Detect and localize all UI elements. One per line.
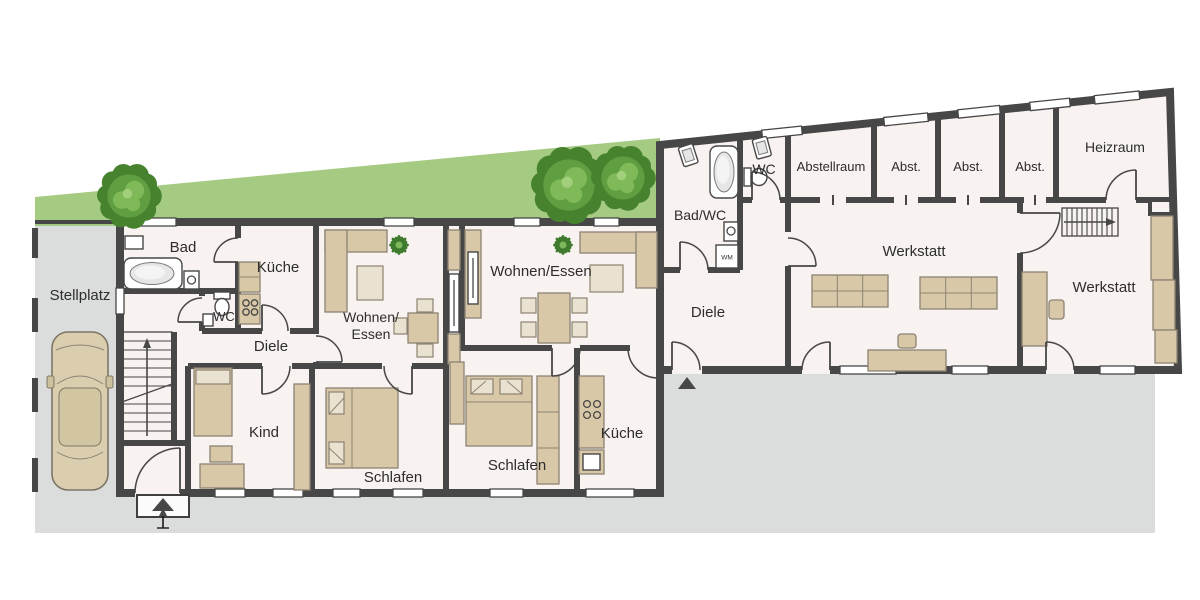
double-bed-icon — [326, 388, 398, 468]
desk-icon — [868, 350, 946, 371]
room-label-wc-2: WC — [752, 161, 775, 177]
window — [594, 218, 619, 226]
desk-icon — [1022, 272, 1047, 346]
wardrobe-icon — [294, 384, 310, 490]
double-bed-icon — [466, 376, 532, 446]
room-label-werkstatt-1: Werkstatt — [882, 243, 946, 260]
shelf-icon — [210, 446, 232, 462]
chair-icon — [1049, 300, 1064, 319]
chair-icon — [898, 334, 916, 348]
floor-plan-image: WM — [0, 0, 1200, 600]
bed-icon — [194, 368, 232, 436]
room-label-werkstatt-2: Werkstatt — [1072, 279, 1136, 296]
wardrobe-icon — [450, 362, 464, 424]
washing-machine-icon: WM — [716, 245, 738, 268]
window — [215, 489, 245, 497]
window — [333, 489, 360, 497]
room-label-kind: Kind — [249, 424, 279, 441]
window — [586, 489, 634, 497]
room-label-bad: Bad — [170, 239, 197, 256]
workbench-icon — [920, 277, 997, 309]
room-label-wohnen-essen-1b: Essen — [352, 326, 391, 342]
room-label-schlafen-1: Schlafen — [364, 469, 422, 486]
room-label-diele-2: Diele — [691, 304, 725, 321]
door-opening — [1046, 366, 1074, 374]
room-label-wohnen-essen-2: Wohnen/Essen — [490, 263, 591, 280]
room-label-kueche-1: Küche — [257, 259, 300, 276]
room-label-stellplatz: Stellplatz — [50, 287, 111, 304]
washbasin-icon — [203, 314, 213, 326]
room-label-bad-wc: Bad/WC — [674, 207, 726, 223]
plant-icon — [389, 235, 409, 255]
room-label-wc-1: WC — [213, 309, 235, 324]
washbasin-icon — [184, 271, 199, 289]
washing-machine-label: WM — [721, 255, 733, 262]
window — [116, 288, 124, 314]
workbench-icon — [812, 275, 888, 307]
room-label-abst-3: Abst. — [1015, 159, 1045, 174]
window — [490, 489, 523, 497]
washbasin-icon — [724, 222, 738, 241]
window — [1100, 366, 1135, 374]
room-label-diele-1: Diele — [254, 338, 288, 355]
room-label-kueche-2: Küche — [601, 425, 644, 442]
room-label-abst-2: Abst. — [953, 159, 983, 174]
room-label-abstellraum: Abstellraum — [797, 159, 866, 174]
car-icon — [47, 332, 113, 490]
window — [514, 218, 540, 226]
cabinet-icon — [1151, 216, 1177, 363]
door-opening — [802, 366, 830, 374]
window — [393, 489, 423, 497]
entrance-opening — [672, 366, 702, 374]
room-label-schlafen-2: Schlafen — [488, 457, 546, 474]
bathtub-icon — [710, 146, 738, 198]
bath-cabinet-icon — [125, 236, 143, 249]
bathtub-icon — [124, 258, 182, 289]
window — [384, 218, 414, 226]
desk-icon — [200, 464, 244, 488]
plant-icon — [553, 235, 573, 255]
room-label-heizraum: Heizraum — [1085, 139, 1145, 155]
room-label-abst-1: Abst. — [891, 159, 921, 174]
window — [952, 366, 988, 374]
room-label-wohnen-essen-1a: Wohnen/ — [343, 309, 399, 325]
